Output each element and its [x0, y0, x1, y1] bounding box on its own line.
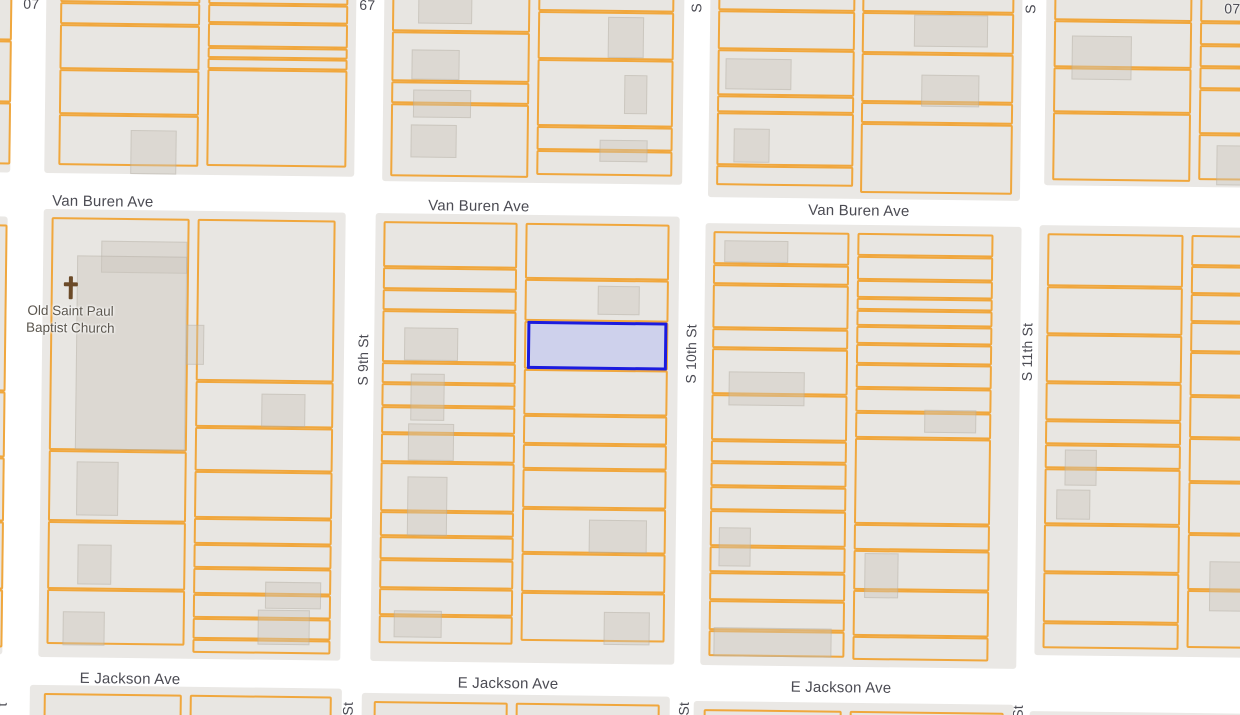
parcel[interactable]	[854, 524, 990, 552]
parcel[interactable]	[857, 256, 993, 282]
building-footprint	[924, 410, 976, 434]
parcel[interactable]	[524, 279, 669, 323]
building-footprint	[76, 461, 119, 516]
parcel[interactable]	[523, 369, 668, 417]
building-footprint	[62, 611, 104, 646]
building-footprint	[608, 17, 644, 58]
parcel[interactable]	[59, 24, 200, 71]
building-footprint	[914, 15, 988, 48]
parcel[interactable]	[857, 280, 993, 300]
parcel[interactable]	[710, 462, 846, 488]
building-footprint	[589, 520, 647, 554]
parcel[interactable]	[189, 695, 331, 715]
selected-parcel[interactable]	[527, 321, 668, 371]
street-label: Van Buren Ave	[428, 198, 529, 214]
building-footprint	[418, 0, 472, 24]
parcel[interactable]	[193, 544, 331, 570]
city-block	[1029, 711, 1240, 715]
building-footprint	[130, 130, 177, 175]
parcel[interactable]	[849, 711, 1003, 715]
parcel[interactable]	[1191, 266, 1240, 295]
parcel[interactable]	[47, 521, 186, 591]
parcel[interactable]	[710, 486, 846, 512]
parcel[interactable]	[196, 219, 336, 383]
parcel[interactable]	[0, 102, 11, 165]
parcel[interactable]	[716, 165, 853, 187]
parcel[interactable]	[1190, 294, 1240, 323]
parcel[interactable]	[1043, 524, 1180, 574]
building-footprint	[724, 240, 788, 263]
building-footprint	[1071, 35, 1132, 80]
building-footprint	[186, 325, 204, 365]
parcel[interactable]	[59, 69, 200, 116]
cross-icon	[62, 276, 80, 300]
parcel[interactable]	[852, 636, 988, 662]
parcel[interactable]	[380, 536, 514, 561]
parcel[interactable]	[860, 123, 1013, 195]
parcel[interactable]	[1047, 233, 1184, 288]
parcel[interactable]	[1199, 67, 1240, 90]
parcel[interactable]	[382, 362, 516, 385]
parcel[interactable]	[0, 40, 12, 103]
parcel[interactable]	[1199, 89, 1240, 135]
street-label: E Jackson Ave	[458, 676, 559, 692]
parcel[interactable]	[194, 471, 333, 520]
parcel[interactable]	[1189, 438, 1240, 483]
parcel[interactable]	[718, 10, 855, 51]
parcel[interactable]	[208, 4, 348, 25]
poi-label: Old Saint Paul Baptist Church	[0, 301, 140, 337]
poi-label-line2: Baptist Church	[0, 318, 140, 337]
parcel[interactable]	[0, 521, 4, 590]
parcel[interactable]	[206, 69, 347, 168]
street-label: E Jackson Ave	[80, 671, 181, 687]
street-label-fragment: t	[0, 702, 9, 706]
parcel[interactable]	[515, 703, 659, 715]
parcel[interactable]	[0, 391, 6, 458]
building-footprint	[864, 553, 899, 598]
parcel[interactable]	[522, 469, 666, 510]
building-footprint	[77, 544, 111, 584]
street-label: Van Buren Ave	[808, 203, 909, 219]
map-canvas: Old Saint Paul Baptist Church Van Buren …	[0, 0, 1240, 715]
building-footprint	[599, 140, 647, 163]
parcel[interactable]	[1191, 235, 1240, 267]
parcel[interactable]	[717, 95, 854, 114]
street-label-fragment: 07	[23, 0, 39, 11]
street-label-fragment: S	[1023, 4, 1037, 14]
street-label-fragment: 67	[359, 0, 375, 12]
street-label-vertical: S 10th St	[684, 324, 699, 384]
parcel[interactable]	[521, 553, 665, 594]
parcel[interactable]	[195, 427, 334, 473]
parcel[interactable]	[854, 438, 991, 526]
building-footprint	[1056, 489, 1090, 519]
parcel[interactable]	[0, 0, 13, 41]
building-footprint	[718, 527, 750, 566]
street-label-fragment: St	[341, 702, 355, 715]
parcel[interactable]	[1190, 322, 1240, 353]
parcel[interactable]	[1043, 572, 1180, 624]
parcel[interactable]	[523, 415, 667, 446]
building-footprint	[1216, 145, 1240, 186]
poi-label-line1: Old Saint Paul	[0, 301, 140, 320]
building-footprint	[413, 89, 471, 118]
parcel[interactable]	[383, 289, 517, 312]
street-label-fragment: S	[689, 3, 703, 13]
parcel[interactable]	[713, 264, 849, 286]
building-footprint	[603, 612, 649, 646]
parcel[interactable]	[856, 326, 992, 346]
parcel[interactable]	[856, 364, 992, 390]
street-label-fragment: St	[677, 702, 691, 715]
parcel[interactable]	[856, 344, 992, 366]
building-footprint	[598, 286, 640, 316]
parcel[interactable]	[1200, 22, 1240, 46]
parcel-map[interactable]: Old Saint Paul Baptist Church Van Buren …	[0, 0, 1240, 715]
parcel[interactable]	[712, 284, 849, 330]
parcel[interactable]	[383, 267, 517, 291]
parcel[interactable]	[1200, 45, 1240, 68]
poi-church[interactable]: Old Saint Paul Baptist Church	[0, 275, 141, 337]
parcel[interactable]	[208, 23, 348, 49]
street-label: E Jackson Ave	[791, 680, 892, 696]
parcel[interactable]	[523, 444, 667, 471]
building-footprint	[624, 75, 647, 114]
building-footprint	[1209, 561, 1240, 612]
parcel[interactable]	[1052, 112, 1191, 182]
building-footprint	[1064, 449, 1096, 485]
street-label-fragment: 07	[1224, 1, 1240, 15]
parcel[interactable]	[194, 518, 332, 546]
building-footprint	[733, 128, 769, 162]
parcel[interactable]	[538, 11, 675, 61]
parcel[interactable]	[379, 559, 513, 590]
building-footprint	[411, 49, 459, 80]
parcel[interactable]	[1046, 286, 1183, 336]
parcel[interactable]	[1190, 352, 1240, 397]
parcel[interactable]	[712, 328, 848, 350]
parcel[interactable]	[1046, 334, 1183, 384]
parcel[interactable]	[857, 233, 993, 258]
building-footprint	[728, 371, 804, 406]
street-label: Van Buren Ave	[52, 194, 153, 210]
building-footprint	[713, 627, 831, 657]
building-footprint	[410, 124, 456, 158]
parcel[interactable]	[703, 709, 841, 715]
building-footprint	[394, 610, 442, 638]
building-footprint	[725, 58, 791, 90]
building-footprint	[261, 394, 305, 428]
building-footprint	[921, 75, 979, 108]
building-footprint	[408, 423, 454, 461]
parcel[interactable]	[373, 701, 507, 715]
parcel[interactable]	[43, 693, 181, 715]
parcel[interactable]	[537, 59, 674, 128]
street-label-fragment: St	[1011, 705, 1025, 715]
parcel[interactable]	[711, 440, 847, 464]
parcel[interactable]	[0, 457, 5, 522]
parcel[interactable]	[525, 223, 670, 281]
building-footprint	[407, 476, 448, 535]
parcel[interactable]	[60, 2, 200, 26]
building-footprint	[257, 610, 309, 646]
parcel[interactable]	[1054, 0, 1192, 22]
building-footprint	[404, 327, 458, 361]
parcel[interactable]	[1188, 482, 1240, 535]
building-footprint	[265, 582, 321, 610]
parcel[interactable]	[0, 589, 3, 648]
parcel[interactable]	[58, 114, 199, 167]
parcel[interactable]	[381, 383, 515, 408]
parcel[interactable]	[1189, 396, 1240, 439]
building-footprint	[410, 373, 445, 420]
parcel[interactable]	[383, 221, 518, 269]
street-label-vertical: S 9th St	[356, 334, 371, 386]
parcel[interactable]	[1042, 622, 1178, 650]
parcel[interactable]	[1045, 420, 1181, 446]
street-label-vertical: S 11th St	[1020, 323, 1035, 382]
parcel[interactable]	[1045, 382, 1181, 422]
parcel[interactable]	[856, 310, 992, 328]
parcel[interactable]	[709, 572, 845, 602]
